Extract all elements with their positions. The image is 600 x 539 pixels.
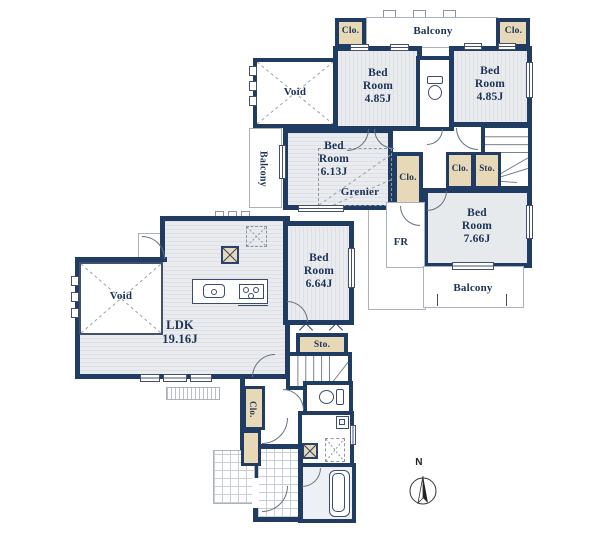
storage-label: Sto. xyxy=(473,163,501,173)
void-label-2f: Void xyxy=(258,86,332,98)
grenier-label: Grenier xyxy=(320,186,400,198)
window-small xyxy=(71,292,79,302)
closet-label: Clo. xyxy=(335,26,366,37)
balcony-bottom-label: Balcony xyxy=(428,282,518,294)
stove-icon xyxy=(239,284,264,299)
ceiling-hatch xyxy=(246,226,267,247)
vanity-icon xyxy=(336,416,349,429)
window xyxy=(190,374,212,382)
toilet-icon-1f xyxy=(318,389,344,405)
closet-label: Clo. xyxy=(248,390,258,428)
deck-hatch xyxy=(166,387,220,400)
room-label-bedroom-766j: Bed Room 7.66J xyxy=(425,207,529,246)
closet-label: Clo. xyxy=(497,26,530,37)
washer-pan-icon xyxy=(325,438,345,462)
window xyxy=(390,44,409,51)
balcony-rail-tick xyxy=(437,294,438,306)
storage-label: Sto. xyxy=(298,340,346,351)
sink-icon xyxy=(203,284,225,298)
window xyxy=(498,43,516,50)
room-label-bedroom-485j-right: Bed Room 4.85J xyxy=(452,65,528,104)
room-label-ldk: LDK 19.16J xyxy=(140,318,220,346)
toilet-icon-2f xyxy=(427,76,443,102)
window-small xyxy=(249,96,257,106)
window-small xyxy=(249,66,257,76)
refrigerator-icon xyxy=(221,246,239,264)
window xyxy=(350,425,356,445)
balcony-rail-tick xyxy=(506,294,507,306)
balcony-left-label: Balcony xyxy=(257,134,268,204)
entrance-door-gap xyxy=(252,478,259,508)
room-label-bedroom-613j: Bed Room 6.13J xyxy=(288,140,380,179)
window-small xyxy=(71,276,79,286)
room-label-bedroom-664j: Bed Room 6.64J xyxy=(285,252,353,291)
window xyxy=(279,145,286,179)
bathtub-icon xyxy=(329,470,350,517)
shoe-cabinet xyxy=(241,430,261,466)
floor-plan-canvas: N Clo. Balcony Clo. Bed Room 4.85J Bed R… xyxy=(0,0,600,539)
closet-label: Clo. xyxy=(393,173,423,184)
washing-machine-icon xyxy=(302,443,318,459)
stove-grill-line xyxy=(238,305,268,306)
window xyxy=(298,205,344,212)
window xyxy=(163,374,187,382)
void-label-1f: Void xyxy=(82,290,160,302)
window xyxy=(350,44,369,51)
window xyxy=(452,262,494,270)
window-small xyxy=(71,308,79,318)
compass-north-label: N xyxy=(411,457,427,468)
closet-label: Clo. xyxy=(446,163,474,173)
window xyxy=(140,374,160,382)
kitchen-counter xyxy=(192,279,268,304)
window xyxy=(464,43,482,50)
window-small xyxy=(249,81,257,91)
balcony-label: Balcony xyxy=(388,25,478,37)
room-label-bedroom-485j-left: Bed Room 4.85J xyxy=(338,67,418,106)
free-room-label: FR xyxy=(386,237,416,249)
